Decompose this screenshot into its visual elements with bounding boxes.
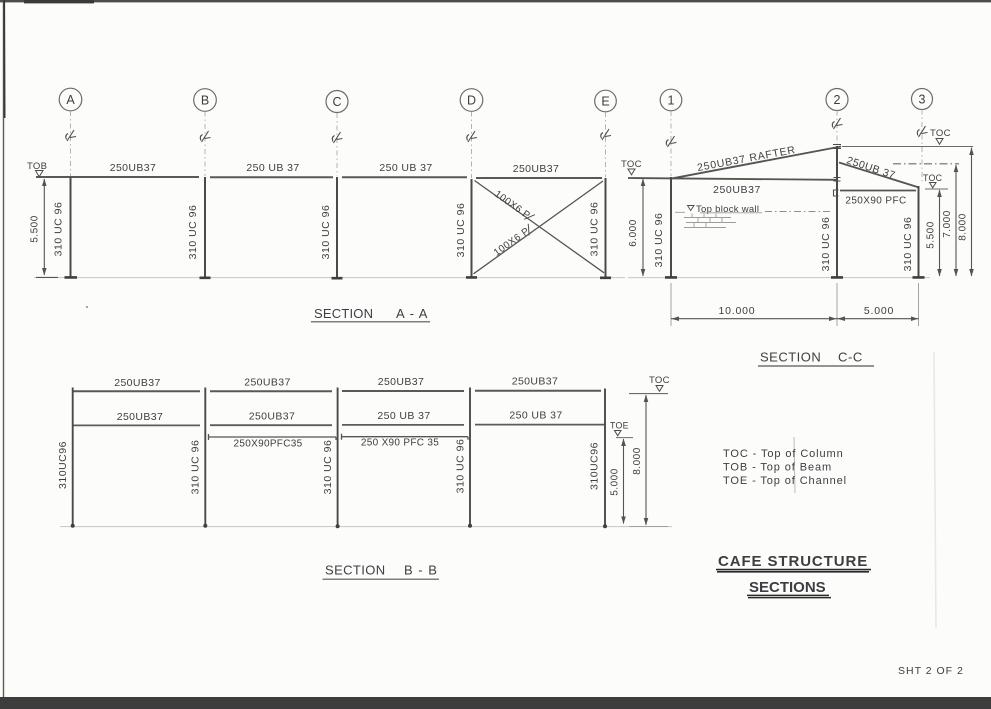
svg-text:310UC96: 310UC96 [57,441,69,489]
svg-text:A - A: A - A [396,306,428,321]
svg-text:SHT 2 OF 2: SHT 2 OF 2 [898,665,964,677]
svg-text:310 UC 96: 310 UC 96 [53,202,65,257]
svg-text:250UB37: 250UB37 [378,376,425,388]
svg-text:310 UC 96: 310 UC 96 [820,217,832,272]
svg-text:310 UC 96: 310 UC 96 [902,217,914,272]
svg-text:310UC96: 310UC96 [589,442,601,490]
svg-text:250UB37: 250UB37 [513,163,560,175]
svg-text:SECTIONS: SECTIONS [749,579,826,596]
svg-text:250UB37: 250UB37 [114,377,161,389]
svg-text:10.000: 10.000 [719,305,756,317]
svg-text:C-C: C-C [838,350,863,365]
svg-text:310 UC 96: 310 UC 96 [589,202,601,257]
svg-text:310 UC 96: 310 UC 96 [653,213,665,268]
svg-text:A: A [66,93,75,107]
svg-text:250 UB 37: 250 UB 37 [377,410,430,422]
svg-text:250UB37: 250UB37 [249,411,296,423]
svg-text:TOE - Top of Channel: TOE - Top of Channel [723,475,847,487]
svg-text:250UB37: 250UB37 [117,411,164,423]
svg-text:TOC: TOC [649,375,670,386]
svg-text:250 UB 37: 250 UB 37 [509,410,562,422]
svg-text:5.500: 5.500 [30,215,41,243]
svg-text:310 UC 96: 310 UC 96 [190,440,202,495]
svg-text:250X90PFC35: 250X90PFC35 [234,439,303,450]
svg-text:250UB37: 250UB37 [110,162,157,174]
svg-text:TOC: TOC [930,128,951,139]
svg-text:TOC - Top of Column: TOC - Top of Column [723,448,844,460]
svg-text:250 X90 PFC 35: 250 X90 PFC 35 [361,438,439,449]
svg-text:TOE: TOE [610,421,629,431]
svg-text:8.000: 8.000 [958,213,969,241]
svg-text:Top block wall: Top block wall [696,204,759,215]
svg-text:B - B: B - B [404,563,438,578]
svg-text:250 UB 37: 250 UB 37 [379,162,432,174]
svg-text:3: 3 [919,93,926,107]
svg-text:250 UB 37: 250 UB 37 [246,162,299,174]
svg-text:SECTION: SECTION [760,350,821,365]
svg-text:CAFE STRUCTURE: CAFE STRUCTURE [718,553,868,570]
svg-text:6.000: 6.000 [628,219,639,247]
svg-text:250X90 PFC: 250X90 PFC [845,196,906,207]
svg-text:5.500: 5.500 [926,221,937,249]
svg-text:250UB37: 250UB37 [244,377,291,389]
svg-text:250UB37: 250UB37 [512,376,559,388]
svg-text:D: D [467,94,476,108]
svg-text:SECTION: SECTION [314,306,373,321]
svg-text:5.000: 5.000 [864,305,894,317]
svg-text:310 UC 96: 310 UC 96 [322,440,334,495]
svg-text:1: 1 [668,94,675,108]
svg-text:250UB37: 250UB37 [713,184,761,196]
svg-text:5.000: 5.000 [610,468,621,496]
svg-text:B: B [201,94,209,108]
svg-text:SECTION: SECTION [325,563,386,578]
svg-text:8.000: 8.000 [632,447,643,475]
svg-text:310 UC 96: 310 UC 96 [320,205,332,260]
svg-text:7.000: 7.000 [942,210,953,238]
svg-text:2: 2 [834,93,841,107]
svg-text:E: E [601,95,609,109]
svg-text:TOB - Top of Beam: TOB - Top of Beam [723,462,832,474]
svg-text:TOC: TOC [621,159,642,170]
svg-text:310 UC 96: 310 UC 96 [455,203,467,258]
svg-text:TOC: TOC [923,173,943,183]
svg-text:C: C [332,95,341,109]
svg-text:310 UC 96: 310 UC 96 [455,439,467,494]
svg-text:310 UC 96: 310 UC 96 [187,205,199,260]
